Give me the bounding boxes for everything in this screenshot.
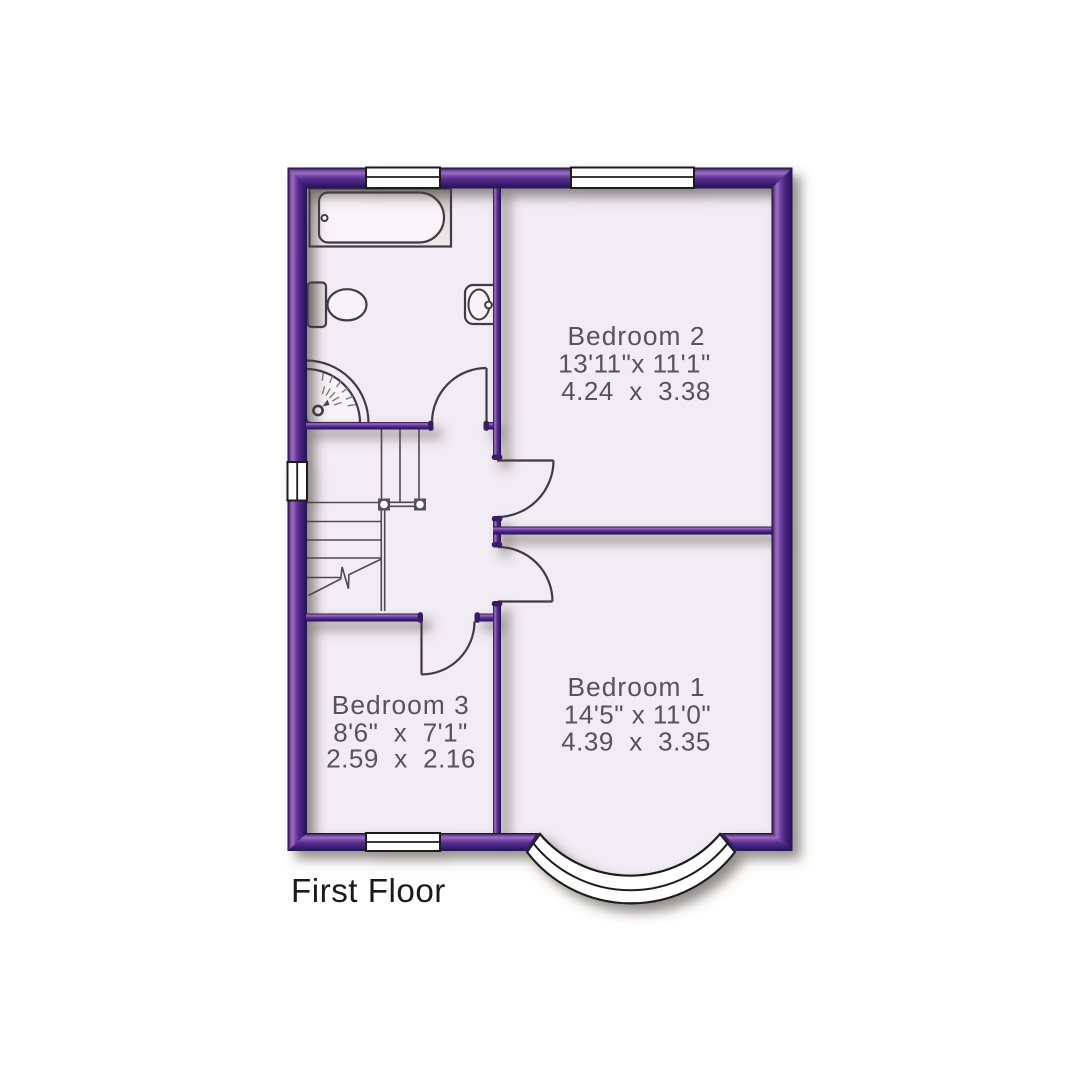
svg-text:14'5" x 11'0": 14'5" x 11'0" bbox=[564, 700, 711, 730]
svg-text:First Floor: First Floor bbox=[291, 873, 446, 910]
svg-text:Bedroom 1: Bedroom 1 bbox=[567, 672, 705, 702]
svg-text:2.59 x 2.16: 2.59 x 2.16 bbox=[326, 744, 476, 774]
svg-text:Bedroom 3: Bedroom 3 bbox=[332, 690, 470, 720]
svg-text:4.24 x 3.38: 4.24 x 3.38 bbox=[561, 376, 711, 406]
svg-text:4.39 x 3.35: 4.39 x 3.35 bbox=[561, 727, 711, 757]
svg-text:Bedroom 2: Bedroom 2 bbox=[567, 321, 705, 351]
svg-text:13'11"x 11'1": 13'11"x 11'1" bbox=[558, 349, 710, 379]
